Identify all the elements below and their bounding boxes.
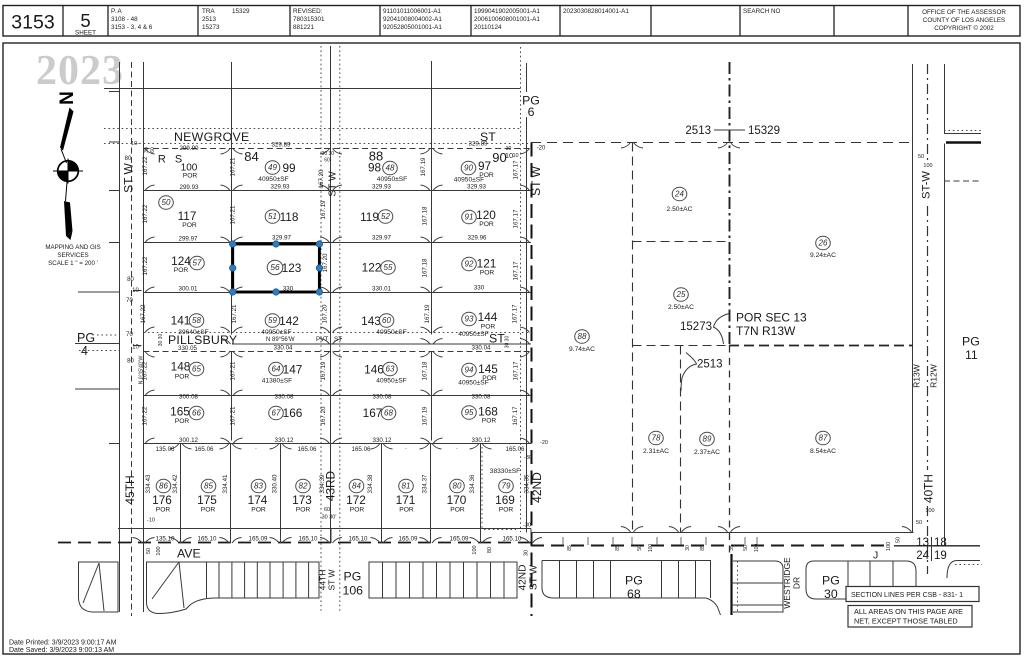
svg-text:45TH: 45TH (123, 475, 137, 504)
svg-text:329.89: 329.89 (469, 141, 488, 148)
svg-text:167: 167 (363, 406, 383, 420)
svg-text:106: 106 (343, 584, 364, 598)
svg-text:171: 171 (396, 493, 416, 507)
svg-text:30: 30 (524, 550, 530, 556)
svg-text:100: 100 (886, 542, 892, 551)
svg-text:329.93: 329.93 (271, 184, 290, 191)
svg-text:POR: POR (175, 418, 190, 425)
svg-text:85: 85 (567, 545, 573, 551)
svg-text:146: 146 (364, 363, 384, 377)
svg-text:85: 85 (204, 482, 213, 491)
svg-text:51: 51 (268, 212, 277, 221)
svg-text:50: 50 (146, 548, 152, 554)
svg-text:TRA: TRA (202, 8, 215, 15)
svg-text:167.19: 167.19 (320, 200, 327, 219)
svg-text:COPYRIGHT © 2002: COPYRIGHT © 2002 (934, 24, 994, 32)
svg-text:59: 59 (268, 316, 277, 325)
svg-text:60: 60 (150, 147, 156, 153)
svg-text:330.05: 330.05 (178, 345, 197, 352)
svg-text:2.50±AC: 2.50±AC (668, 304, 694, 311)
svg-text:168: 168 (478, 405, 498, 419)
svg-text:2023030828014001-A1: 2023030828014001-A1 (563, 8, 629, 15)
svg-text:PG: PG (822, 574, 840, 588)
svg-text:-20: -20 (537, 146, 546, 152)
svg-text:92: 92 (465, 260, 474, 269)
svg-text:9.24±AC: 9.24±AC (810, 252, 836, 259)
svg-text:POR: POR (183, 173, 198, 180)
svg-text:175: 175 (197, 493, 217, 507)
svg-text:N 89°56'W: N 89°56'W (266, 337, 295, 343)
svg-text:SERVICES: SERVICES (57, 252, 88, 259)
svg-text:30 30: 30 30 (158, 334, 164, 347)
svg-text:330.12: 330.12 (472, 437, 491, 444)
svg-text:38330±SF: 38330±SF (490, 468, 520, 475)
svg-text:13: 13 (916, 537, 929, 549)
svg-text:P. A: P. A (111, 8, 123, 15)
svg-text:330: 330 (283, 285, 294, 292)
svg-text:5: 5 (80, 10, 90, 31)
svg-text:165.09: 165.09 (249, 536, 268, 543)
svg-text:70: 70 (126, 332, 133, 338)
svg-text:50: 50 (743, 545, 749, 551)
svg-text:N 0°15'40"W: N 0°15'40"W (139, 356, 145, 385)
svg-text:POR: POR (482, 418, 497, 425)
svg-text:334.37: 334.37 (422, 474, 429, 493)
svg-text:169: 169 (495, 493, 515, 507)
svg-text:ST W: ST W (327, 569, 337, 590)
svg-text:2.31±AC: 2.31±AC (643, 448, 669, 455)
svg-text:91: 91 (465, 213, 474, 222)
svg-text:329.97: 329.97 (272, 235, 291, 242)
svg-text:2513: 2513 (697, 359, 723, 371)
svg-text:50: 50 (916, 520, 922, 526)
svg-text:330.04: 330.04 (274, 345, 293, 352)
svg-text:167.21: 167.21 (230, 361, 237, 380)
svg-text:POR: POR (499, 507, 514, 514)
svg-text:329.89: 329.89 (272, 142, 291, 149)
svg-text:167.21: 167.21 (231, 304, 238, 323)
svg-text:SEARCH NO: SEARCH NO (743, 8, 781, 15)
svg-text:330: 330 (474, 285, 485, 292)
svg-text:Date Printed: 3/9/2023 9:00:1: Date Printed: 3/9/2023 9:00:17 AM (9, 640, 117, 647)
svg-text:64: 64 (272, 365, 281, 374)
svg-text:2006100608001001-A1: 2006100608001001-A1 (474, 16, 540, 23)
svg-text:334.36: 334.36 (469, 474, 476, 493)
svg-text:55: 55 (384, 263, 393, 272)
svg-text:ST W: ST W (328, 171, 339, 197)
svg-text:WESTRIDGE: WESTRIDGE (782, 557, 792, 609)
svg-text:10-: 10- (131, 141, 139, 147)
svg-text:POR: POR (479, 221, 494, 228)
svg-text:58: 58 (192, 316, 201, 325)
svg-text:T7N R13W: T7N R13W (736, 324, 796, 338)
svg-text:166: 166 (283, 406, 303, 420)
svg-text:334.39: 334.39 (319, 474, 326, 493)
svg-text:117: 117 (178, 209, 197, 223)
svg-text:-30: -30 (523, 523, 531, 529)
svg-text:ST-W: ST-W (921, 171, 933, 199)
svg-text:84: 84 (352, 482, 361, 491)
svg-text:123: 123 (282, 261, 302, 275)
svg-text:41380±SF: 41380±SF (262, 378, 292, 385)
svg-text:ST W: ST W (529, 564, 540, 590)
svg-text:124: 124 (171, 254, 191, 268)
svg-text:20110124: 20110124 (474, 24, 502, 31)
svg-text:68: 68 (384, 409, 393, 418)
svg-text:881221: 881221 (293, 24, 315, 31)
svg-text:330.40: 330.40 (272, 474, 279, 493)
svg-text:165.10: 165.10 (299, 536, 318, 543)
svg-text:60: 60 (324, 158, 330, 164)
svg-text:R13W: R13W (912, 364, 922, 388)
svg-text:100: 100 (472, 545, 478, 554)
svg-text:165.10: 165.10 (503, 536, 522, 543)
svg-text:R12W: R12W (929, 364, 939, 388)
svg-text:334.35: 334.35 (524, 474, 531, 493)
svg-text:30: 30 (685, 545, 691, 551)
svg-text:167.17: 167.17 (513, 361, 520, 380)
svg-text:167.20: 167.20 (322, 304, 329, 323)
svg-text:POR: POR (399, 507, 414, 514)
svg-text:167.22: 167.22 (142, 156, 149, 175)
svg-text:2.50±AC: 2.50±AC (667, 206, 693, 213)
svg-text:40TH: 40TH (922, 474, 936, 503)
svg-text:167.18: 167.18 (422, 206, 429, 225)
svg-text:40950±SF: 40950±SF (258, 176, 288, 183)
svg-text:19: 19 (934, 550, 947, 562)
svg-text:86: 86 (159, 482, 168, 491)
svg-text:167.19: 167.19 (420, 157, 427, 176)
svg-text:100: 100 (754, 544, 760, 553)
svg-text:167.17: 167.17 (512, 304, 519, 323)
svg-text:167.19: 167.19 (320, 361, 327, 380)
svg-text:780315301: 780315301 (293, 16, 325, 23)
svg-text:POR: POR (450, 507, 465, 514)
svg-text:60: 60 (324, 507, 330, 513)
svg-text:6: 6 (528, 105, 535, 119)
svg-text:10-: 10- (132, 345, 141, 351)
svg-text:167.20: 167.20 (318, 169, 325, 188)
svg-text:170: 170 (447, 493, 467, 507)
svg-text:70: 70 (126, 298, 133, 304)
svg-text:99: 99 (282, 161, 295, 175)
svg-text:25: 25 (676, 290, 686, 299)
svg-text:63: 63 (386, 365, 395, 374)
svg-text:POR SEC 13: POR SEC 13 (736, 311, 807, 325)
svg-text:167.17: 167.17 (513, 160, 520, 179)
svg-text:165: 165 (170, 405, 190, 419)
svg-text:ALL AREAS ON THIS PAGE ARE: ALL AREAS ON THIS PAGE ARE (854, 607, 963, 616)
svg-text:49: 49 (268, 163, 277, 172)
svg-text:93: 93 (465, 315, 474, 324)
svg-text:87: 87 (819, 434, 828, 443)
svg-text:24: 24 (674, 190, 684, 199)
svg-text:172: 172 (346, 493, 366, 507)
svg-text:135.10: 135.10 (156, 536, 175, 543)
svg-text:SCALE 1 " = 200 ': SCALE 1 " = 200 ' (48, 260, 98, 267)
svg-text:176: 176 (152, 493, 172, 507)
svg-text:15329: 15329 (748, 125, 780, 137)
svg-text:91101011006001-A1: 91101011006001-A1 (383, 8, 441, 15)
svg-text:POR: POR (350, 507, 365, 514)
svg-text:330.08: 330.08 (373, 393, 392, 400)
svg-text:94: 94 (465, 366, 474, 375)
svg-text:89: 89 (703, 435, 712, 444)
svg-text:57: 57 (193, 259, 202, 268)
svg-text:35: 35 (729, 545, 735, 551)
svg-text:1999041902005001-A1: 1999041902005001-A1 (474, 8, 540, 15)
svg-text:299.93: 299.93 (180, 184, 199, 191)
svg-text:50: 50 (637, 545, 643, 551)
svg-text:NEWGROVE: NEWGROVE (174, 130, 250, 144)
svg-text:PVT: PVT (316, 336, 328, 343)
svg-text:40950±SF: 40950±SF (458, 380, 488, 387)
svg-text:42ND: 42ND (530, 472, 544, 503)
svg-text:299.97: 299.97 (179, 235, 198, 242)
svg-text:48: 48 (386, 164, 395, 173)
svg-text:121: 121 (477, 257, 497, 271)
svg-text:-30 30: -30 30 (320, 151, 334, 157)
svg-text:15273: 15273 (202, 24, 220, 31)
svg-text:REVISED:: REVISED: (293, 8, 323, 15)
svg-text:80: 80 (453, 482, 462, 491)
svg-text:167.18: 167.18 (422, 361, 429, 380)
svg-text:Date Saved: 3/9/2023 9:00:13: Date Saved: 3/9/2023 9:00:13 AM (9, 647, 114, 654)
svg-text:POR: POR (201, 507, 216, 514)
svg-text:167.19: 167.19 (424, 304, 431, 323)
svg-text:ST W: ST W (529, 165, 543, 195)
svg-text:165.06: 165.06 (195, 446, 214, 453)
svg-text:174: 174 (248, 493, 268, 507)
svg-text:52: 52 (381, 212, 390, 221)
svg-text:167.21: 167.21 (230, 157, 237, 176)
svg-text:120: 120 (476, 208, 496, 222)
svg-text:167.21: 167.21 (230, 205, 237, 224)
svg-text:334.41: 334.41 (222, 474, 229, 493)
svg-text:50: 50 (162, 198, 171, 207)
svg-text:167.21: 167.21 (230, 406, 237, 425)
svg-text:POR: POR (296, 507, 311, 514)
svg-text:142: 142 (279, 314, 299, 328)
svg-text:68: 68 (627, 587, 641, 601)
svg-text:135.06: 135.06 (156, 446, 175, 453)
svg-text:15273: 15273 (680, 321, 712, 333)
svg-text:PG: PG (962, 335, 980, 349)
svg-text:80: 80 (127, 277, 134, 283)
svg-text:143: 143 (361, 314, 381, 328)
svg-text:88: 88 (578, 332, 587, 341)
svg-text:MAPPING AND GIS: MAPPING AND GIS (45, 244, 100, 251)
svg-text:-30: -30 (524, 455, 532, 461)
svg-text:167.22: 167.22 (142, 204, 149, 223)
svg-text:299.90: 299.90 (180, 145, 199, 152)
svg-text:2.37±AC: 2.37±AC (694, 449, 720, 456)
svg-text:173: 173 (292, 493, 312, 507)
svg-text:167.17: 167.17 (513, 209, 520, 228)
svg-text:PG: PG (344, 570, 362, 584)
svg-text:97: 97 (478, 159, 491, 173)
svg-text:300.01: 300.01 (179, 286, 198, 293)
svg-text:2023: 2023 (36, 48, 124, 94)
svg-text:145: 145 (478, 362, 498, 376)
svg-text:95: 95 (465, 408, 474, 417)
svg-text:167.20: 167.20 (320, 406, 327, 425)
svg-text:2513: 2513 (685, 125, 711, 137)
svg-text:80: 80 (487, 547, 493, 553)
svg-text:40950±SF: 40950±SF (376, 378, 406, 385)
svg-text:66: 66 (192, 409, 201, 418)
svg-text:334.38: 334.38 (367, 474, 374, 493)
svg-text:11: 11 (965, 348, 978, 362)
svg-text:100: 100 (648, 544, 654, 553)
svg-text:56: 56 (270, 262, 280, 272)
svg-text:POR: POR (175, 374, 190, 381)
svg-text:122: 122 (362, 261, 382, 275)
svg-text:167.22: 167.22 (142, 256, 149, 275)
svg-text:167.17: 167.17 (513, 261, 520, 280)
svg-text:147: 147 (283, 363, 303, 377)
svg-text:50: 50 (896, 537, 902, 543)
svg-text:167.22: 167.22 (140, 304, 147, 323)
svg-text:119: 119 (360, 210, 379, 224)
svg-text:30 30': 30 30' (322, 515, 337, 521)
svg-text:24: 24 (916, 550, 929, 562)
svg-text:60: 60 (382, 316, 391, 325)
svg-text:10-: 10- (132, 288, 141, 294)
svg-text:POR: POR (480, 270, 495, 277)
svg-text:2513: 2513 (202, 16, 217, 23)
svg-text:POR: POR (182, 222, 197, 229)
svg-text:165.06: 165.06 (506, 446, 525, 453)
svg-text:-20: -20 (540, 440, 548, 446)
svg-text:92041008004002-A1: 92041008004002-A1 (383, 16, 442, 23)
svg-text:167.18: 167.18 (422, 258, 429, 277)
svg-text:334.43: 334.43 (145, 474, 152, 493)
svg-text:141: 141 (171, 314, 191, 328)
svg-text:330.12: 330.12 (275, 437, 294, 444)
svg-text:3153 - 3, 4 & 6: 3153 - 3, 4 & 6 (111, 24, 153, 31)
svg-text:ST: ST (489, 332, 505, 346)
svg-text:42ND: 42ND (518, 564, 529, 590)
svg-text:30: 30 (824, 587, 838, 601)
svg-text:167.19: 167.19 (422, 406, 429, 425)
svg-text:15329: 15329 (232, 8, 250, 15)
svg-text:9.74±AC: 9.74±AC (569, 346, 595, 353)
svg-text:40950±SF: 40950±SF (261, 329, 291, 336)
svg-text:NET, EXCEPT THOSE TABLED: NET, EXCEPT THOSE TABLED (854, 617, 958, 626)
svg-text:18: 18 (934, 537, 947, 549)
svg-text:40950±SF: 40950±SF (376, 329, 406, 336)
svg-text:50: 50 (918, 154, 924, 160)
svg-text:POR: POR (251, 507, 266, 514)
svg-text:165.10: 165.10 (198, 536, 217, 543)
svg-text:SHEET: SHEET (75, 29, 96, 36)
svg-text:100: 100 (156, 546, 162, 555)
svg-text:330.04: 330.04 (472, 345, 491, 352)
svg-text:100: 100 (925, 508, 934, 514)
svg-text:165.09: 165.09 (399, 536, 418, 543)
svg-text:165.06: 165.06 (298, 446, 317, 453)
svg-text:POR: POR (156, 507, 171, 514)
svg-text:300.12: 300.12 (179, 437, 198, 444)
svg-text:79: 79 (502, 482, 511, 491)
svg-text:65: 65 (192, 365, 201, 374)
svg-text:334.42: 334.42 (172, 474, 179, 493)
svg-text:J: J (873, 550, 878, 562)
svg-text:ST W: ST W (122, 162, 136, 192)
svg-text:3153: 3153 (11, 12, 54, 34)
svg-text:167.17: 167.17 (512, 406, 519, 425)
svg-text:85: 85 (615, 545, 621, 551)
svg-text:329.93: 329.93 (467, 184, 486, 191)
svg-text:COUNTY OF LOS ANGELES: COUNTY OF LOS ANGELES (923, 17, 1005, 24)
svg-text:26: 26 (818, 239, 828, 248)
svg-text:167.22: 167.22 (142, 406, 149, 425)
svg-text:118: 118 (280, 210, 299, 224)
svg-text:330.08: 330.08 (275, 393, 294, 400)
svg-text:167.20: 167.20 (322, 253, 329, 272)
svg-text:165.10: 165.10 (349, 536, 368, 543)
svg-text:39640±SF: 39640±SF (178, 329, 208, 336)
svg-text:78: 78 (652, 434, 661, 443)
svg-text:329.96: 329.96 (468, 235, 487, 242)
svg-text:PG: PG (77, 331, 95, 345)
svg-text:85: 85 (700, 545, 706, 551)
svg-text:148: 148 (171, 360, 191, 374)
svg-text:N: N (57, 91, 78, 105)
svg-text:10: 10 (512, 153, 518, 159)
svg-text:30: 30 (506, 146, 512, 152)
svg-text:84: 84 (244, 149, 258, 164)
svg-text:DR: DR (792, 577, 802, 589)
svg-text:AVE: AVE (177, 547, 201, 561)
svg-text:329.97: 329.97 (372, 235, 391, 242)
svg-text:80: 80 (125, 156, 132, 162)
svg-text:PG: PG (625, 574, 643, 588)
svg-text:POR: POR (481, 324, 496, 331)
svg-text:40950±SF: 40950±SF (458, 331, 488, 338)
svg-text:98: 98 (368, 161, 382, 175)
svg-text:90: 90 (464, 164, 473, 173)
svg-text:67: 67 (272, 409, 281, 418)
svg-text:330.12: 330.12 (373, 437, 392, 444)
svg-text:92052805001001-A1: 92052805001001-A1 (383, 24, 442, 31)
svg-text:165.09: 165.09 (450, 536, 469, 543)
svg-text:100: 100 (923, 163, 932, 169)
svg-text:144: 144 (478, 310, 498, 324)
svg-text:8.54±AC: 8.54±AC (810, 448, 836, 455)
svg-text:300.08: 300.08 (179, 393, 198, 400)
svg-text:-10: -10 (147, 518, 155, 524)
svg-text:30 30: 30 30 (505, 336, 511, 349)
svg-text:330.08: 330.08 (472, 393, 491, 400)
svg-text:40950±SF: 40950±SF (377, 176, 407, 183)
svg-text:40950±SF: 40950±SF (454, 177, 484, 184)
svg-text:330.01: 330.01 (372, 286, 391, 293)
svg-text:165.06: 165.06 (352, 446, 371, 453)
svg-text:POR: POR (174, 267, 189, 274)
svg-text:OFFICE OF THE ASSESSOR: OFFICE OF THE ASSESSOR (922, 9, 1006, 16)
svg-text:329.93: 329.93 (372, 184, 391, 191)
svg-text:SECTION LINES PER CSB - 831- 1: SECTION LINES PER CSB - 831- 1 (851, 592, 963, 599)
svg-text:3108 - 48: 3108 - 48 (111, 16, 138, 23)
svg-text:81: 81 (402, 482, 411, 491)
svg-text:83: 83 (254, 482, 263, 491)
svg-text:82: 82 (299, 482, 308, 491)
svg-text:80: 80 (127, 359, 134, 365)
